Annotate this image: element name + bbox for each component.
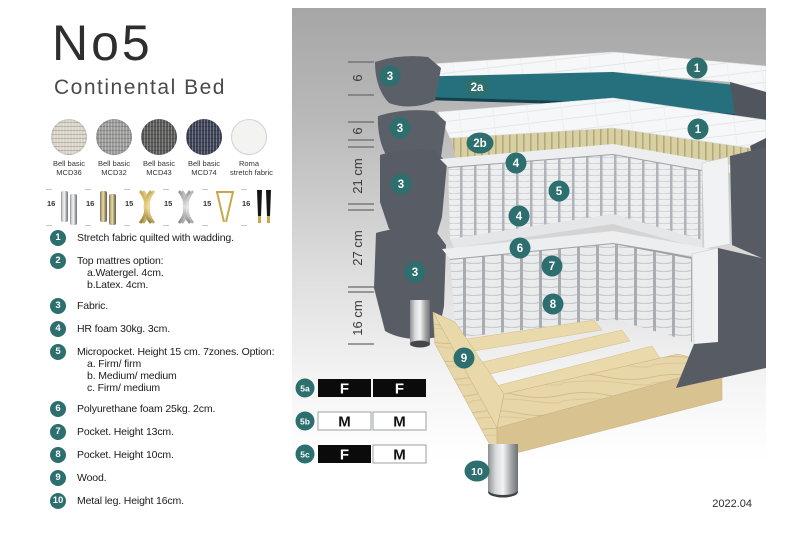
- fabric-swatch: Bell basicMCD36: [50, 119, 88, 177]
- gold-cross-legs-icon: [135, 188, 159, 226]
- svg-text:3: 3: [412, 267, 418, 279]
- rear-metal-leg-foot: [410, 341, 430, 348]
- measurement-label: 21 cm: [350, 158, 365, 193]
- list-number-badge: 1: [50, 230, 66, 246]
- fabric-name: Roma: [230, 159, 268, 168]
- callout-badge: 3: [391, 174, 412, 195]
- list-number-badge: 2: [50, 253, 66, 269]
- svg-text:4: 4: [516, 211, 523, 223]
- fabric-swatch-circle: [231, 119, 267, 155]
- fabric-swatch: Bell basicMCD74: [185, 119, 223, 177]
- svg-text:9: 9: [461, 353, 467, 365]
- list-number-badge: 6: [50, 401, 66, 417]
- svg-text:7: 7: [549, 261, 555, 273]
- black-gold-tip-legs-icon: [252, 188, 276, 226]
- fabric-code: MCD74: [185, 168, 223, 177]
- list-number-badge: 10: [50, 493, 66, 509]
- list-item-subtext: b. Medium/ medium: [87, 370, 274, 382]
- list-item: 3 Fabric.: [50, 298, 295, 314]
- list-item-subtext: a.Watergel. 4cm.: [87, 267, 164, 279]
- list-item-subtext: c. Firm/ medium: [87, 382, 274, 394]
- firmness-value: M: [338, 414, 351, 431]
- list-item: 10 Metal leg. Height 16cm.: [50, 493, 295, 509]
- list-number-badge: 9: [50, 470, 66, 486]
- svg-text:1: 1: [695, 124, 702, 136]
- firmness-value: F: [340, 447, 349, 464]
- list-item-subtext: b.Latex. 4cm.: [87, 279, 164, 291]
- fabric-code: stretch fabric: [230, 168, 268, 177]
- fabric-swatch-circle: [96, 119, 132, 155]
- callout-badge: 2a: [464, 77, 491, 98]
- svg-text:3: 3: [397, 123, 403, 135]
- firmness-value: M: [393, 414, 406, 431]
- list-item-subtext: a. Firm/ firm: [87, 358, 274, 370]
- svg-text:3: 3: [398, 179, 404, 191]
- list-item: 9 Wood.: [50, 470, 295, 486]
- fabric-swatch: Bell basicMCD43: [140, 119, 178, 177]
- callout-badge: 7: [542, 256, 563, 277]
- leg-option: 15: [202, 185, 241, 229]
- leg-height-label: 16: [47, 199, 55, 208]
- list-item-text: Micropocket. Height 15 cm. 7zones. Optio…: [77, 346, 274, 358]
- list-item: 1 Stretch fabric quilted with wadding.: [50, 230, 295, 246]
- list-item-text: Pocket. Height 13cm.: [77, 426, 174, 438]
- fabric-swatch: Romastretch fabric: [230, 119, 268, 177]
- list-item-text: Fabric.: [77, 300, 108, 312]
- callout-badge: 2b: [467, 133, 494, 154]
- front-metal-leg-bottom: [488, 485, 518, 495]
- svg-text:6: 6: [517, 243, 523, 255]
- list-item-text: Top mattres option:: [77, 255, 164, 267]
- firmness-value: F: [395, 381, 404, 398]
- fabric-code: MCD43: [140, 168, 178, 177]
- fabric-swatches: Bell basicMCD36 Bell basicMCD32 Bell bas…: [50, 119, 268, 177]
- svg-text:2b: 2b: [473, 138, 486, 150]
- leg-height-label: 15: [203, 199, 211, 208]
- rear-metal-leg: [410, 300, 430, 344]
- leg-option: 15: [124, 185, 163, 229]
- callout-badge: 6: [510, 238, 531, 259]
- fabric-swatch-circle: [186, 119, 222, 155]
- leg-height-label: 15: [125, 199, 133, 208]
- fabric-name: Bell basic: [185, 159, 223, 168]
- firmness-value: M: [393, 447, 406, 464]
- gold-hairpin-leg-icon: [213, 188, 237, 226]
- svg-text:4: 4: [513, 158, 520, 170]
- diagram-panel: 6 6 21 cm 27 cm 16 cm: [292, 8, 766, 523]
- callout-badge: 9: [454, 348, 475, 369]
- callout-badge: 8: [543, 294, 564, 315]
- list-number-badge: 7: [50, 424, 66, 440]
- leg-option: 16: [46, 185, 85, 229]
- list-number-badge: 4: [50, 321, 66, 337]
- leg-height-label: 16: [242, 199, 250, 208]
- fabric-swatch-circle: [51, 119, 87, 155]
- svg-text:3: 3: [387, 71, 393, 83]
- bronze-cylinder-legs-icon: [96, 188, 120, 226]
- silver-cross-legs-icon: [174, 188, 198, 226]
- measurement-labels: 6 6 21 cm 27 cm 16 cm: [350, 74, 365, 335]
- bed-exploded-diagram: 6 6 21 cm 27 cm 16 cm: [292, 8, 766, 523]
- fabric-name: Bell basic: [50, 159, 88, 168]
- callout-badge: 3: [405, 262, 426, 283]
- list-item-text: Polyurethane foam 25kg. 2cm.: [77, 403, 215, 415]
- callout-badge: 3: [390, 118, 411, 139]
- version-label: 2022.04: [712, 498, 752, 510]
- measurement-label: 6: [350, 74, 365, 81]
- list-item: 6 Polyurethane foam 25kg. 2cm.: [50, 401, 295, 417]
- callout-badge: 10: [465, 461, 490, 482]
- mattress-fabric-right: [730, 147, 766, 260]
- product-title: No5: [52, 14, 153, 72]
- list-item: 4 HR foam 30kg. 3cm.: [50, 321, 295, 337]
- svg-text:10: 10: [471, 466, 483, 478]
- measurement-label: 16 cm: [350, 300, 365, 335]
- leg-option: 15: [163, 185, 202, 229]
- svg-text:1: 1: [694, 63, 701, 75]
- fabric-swatch-circle: [141, 119, 177, 155]
- list-number-badge: 8: [50, 447, 66, 463]
- spec-list: 1 Stretch fabric quilted with wadding. 2…: [50, 230, 295, 516]
- callout-badge: 5: [549, 181, 570, 202]
- leg-option: 16: [85, 185, 124, 229]
- callout-badge: 1: [688, 119, 709, 140]
- svg-text:8: 8: [550, 299, 557, 311]
- list-item-text: Pocket. Height 10cm.: [77, 449, 174, 461]
- page: { "title": "No5", "subtitle": "Continent…: [0, 0, 800, 533]
- leg-height-label: 16: [86, 199, 94, 208]
- mattress-fabric-corner: [380, 149, 447, 235]
- callout-badge: 4: [509, 206, 530, 227]
- callout-badge: 1: [687, 58, 708, 79]
- list-item: 7 Pocket. Height 13cm.: [50, 424, 295, 440]
- product-subtitle: Continental Bed: [54, 76, 226, 100]
- list-item-text: Metal leg. Height 16cm.: [77, 495, 184, 507]
- list-number-badge: 5: [50, 344, 66, 360]
- list-item: 2 Top mattres option: a.Watergel. 4cm. b…: [50, 253, 295, 291]
- list-item-text: Stretch fabric quilted with wadding.: [77, 232, 234, 244]
- leg-height-label: 15: [164, 199, 172, 208]
- measurement-label: 6: [350, 127, 365, 134]
- measurement-label: 27 cm: [350, 230, 365, 265]
- firmness-row-label: 5c: [300, 450, 310, 460]
- fabric-code: MCD36: [50, 168, 88, 177]
- list-number-badge: 3: [50, 298, 66, 314]
- callout-badge: 3: [380, 66, 401, 87]
- front-metal-leg: [488, 444, 518, 491]
- svg-text:5: 5: [556, 186, 563, 198]
- list-item: 8 Pocket. Height 10cm.: [50, 447, 295, 463]
- fabric-swatch: Bell basicMCD32: [95, 119, 133, 177]
- base-corner-post: [692, 248, 720, 346]
- leg-options: 16 16 15 15 15 16: [46, 185, 280, 229]
- chrome-cylinder-legs-icon: [57, 188, 81, 226]
- firmness-row-label: 5a: [300, 384, 310, 394]
- fabric-name: Bell basic: [140, 159, 178, 168]
- callout-badge: 4: [506, 153, 527, 174]
- mattress-corner-post: [702, 157, 730, 249]
- fabric-name: Bell basic: [95, 159, 133, 168]
- firmness-value: F: [340, 381, 349, 398]
- svg-text:2a: 2a: [471, 82, 484, 94]
- list-item-text: Wood.: [77, 472, 106, 484]
- firmness-table: 5a F F 5b M M 5c F M: [296, 379, 427, 464]
- list-item-text: HR foam 30kg. 3cm.: [77, 323, 170, 335]
- fabric-code: MCD32: [95, 168, 133, 177]
- firmness-row-label: 5b: [300, 417, 310, 427]
- leg-option: 16: [241, 185, 280, 229]
- list-item: 5 Micropocket. Height 15 cm. 7zones. Opt…: [50, 344, 295, 394]
